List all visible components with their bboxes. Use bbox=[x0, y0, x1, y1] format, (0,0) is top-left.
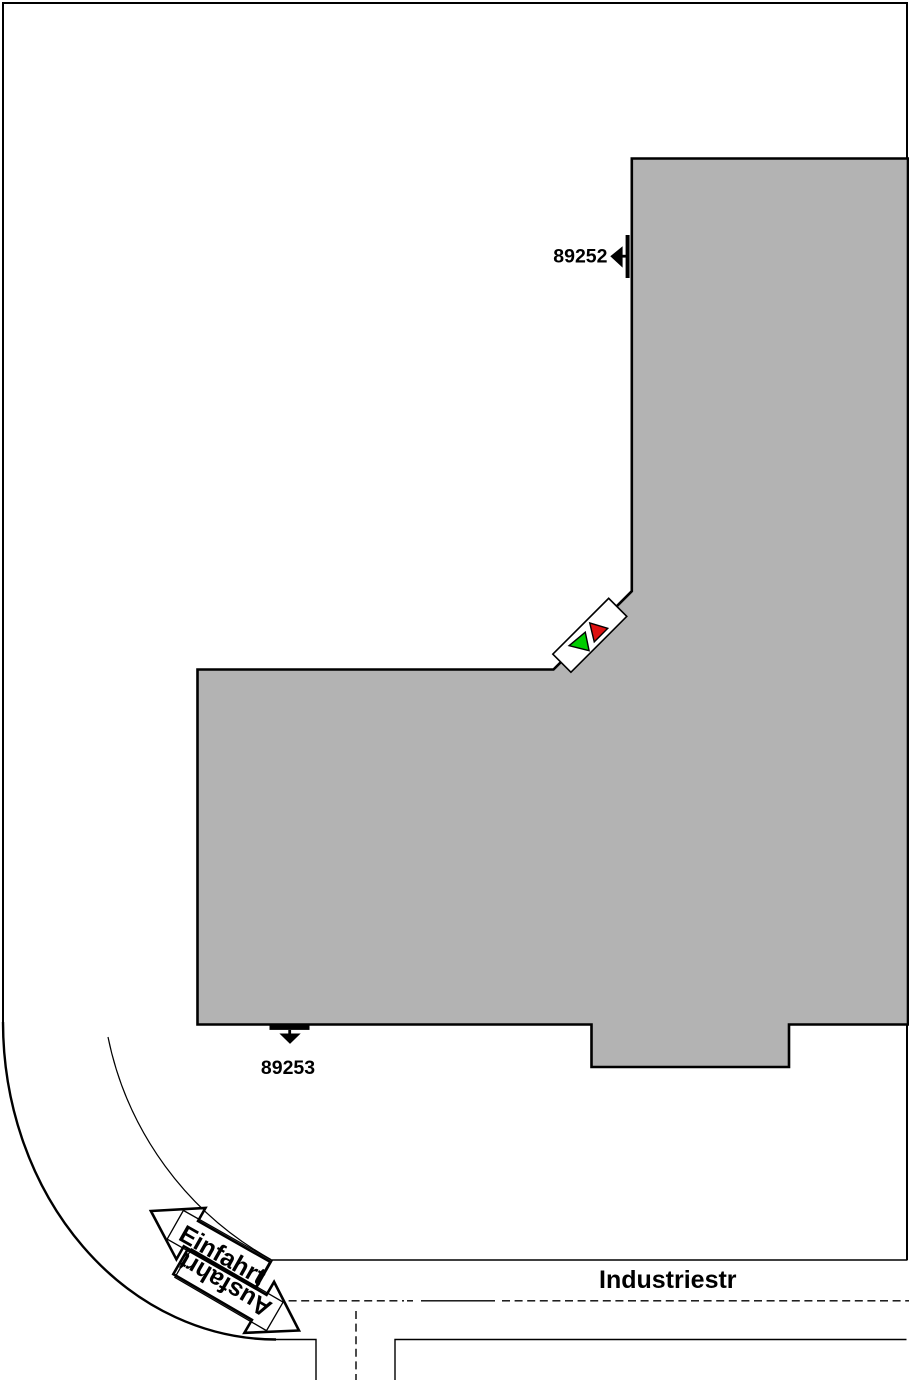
svg-text:Industriestr: Industriestr bbox=[599, 1266, 737, 1294]
svg-text:89253: 89253 bbox=[261, 1057, 315, 1079]
svg-text:89252: 89252 bbox=[553, 246, 607, 268]
